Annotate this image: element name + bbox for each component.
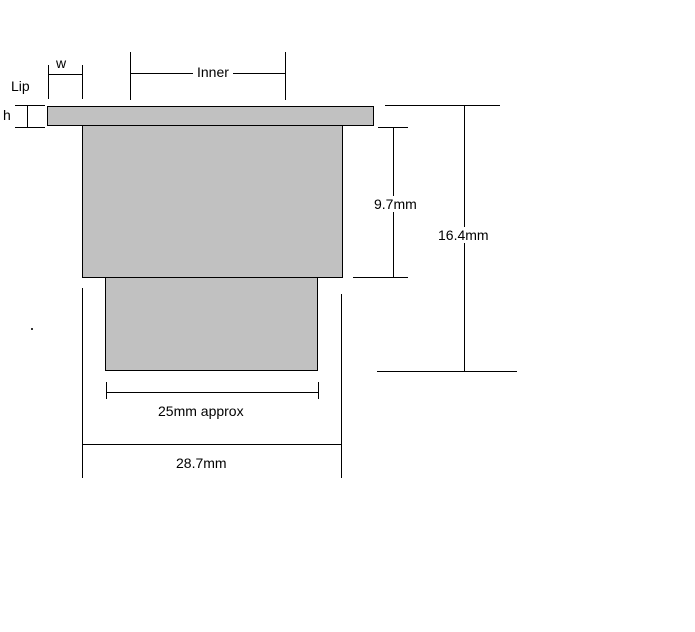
inner-depth-tick-bottom <box>353 277 408 278</box>
lower-width-tick-left <box>106 382 107 399</box>
inner-depth-label: 9.7mm <box>370 196 421 212</box>
lower-block-rect <box>105 277 318 371</box>
body-width-extension-line-left <box>82 288 83 478</box>
w-extension-line-left <box>48 65 49 99</box>
main-body-rect <box>82 125 343 278</box>
total-depth-tick-bottom <box>377 371 517 372</box>
body-width-dimension-line <box>82 444 342 445</box>
flange-lip-rect <box>47 106 374 126</box>
body-width-extension-line-right <box>341 294 342 478</box>
diagram-canvas: w Inner Lip h 9.7mm 16.4mm 25mm approx 2… <box>0 0 695 632</box>
lower-width-tick-right <box>318 382 319 399</box>
inner-extension-line-right <box>285 52 286 100</box>
body-width-label: 28.7mm <box>176 455 227 471</box>
h-label: h <box>3 107 11 123</box>
w-dimension-line <box>48 74 83 75</box>
lip-label: Lip <box>11 78 30 94</box>
lower-width-dimension-line <box>106 392 319 393</box>
stray-dot <box>31 328 33 330</box>
h-dimension-line <box>27 105 28 128</box>
w-label: w <box>56 55 66 71</box>
w-extension-line-right <box>82 65 83 99</box>
h-extension-line-bottom <box>15 127 45 128</box>
inner-extension-line-left <box>130 52 131 100</box>
total-depth-label: 16.4mm <box>434 227 493 243</box>
lower-width-label: 25mm approx <box>158 403 244 419</box>
h-extension-line-top <box>15 105 45 106</box>
inner-depth-tick-top <box>378 127 408 128</box>
total-depth-tick-top <box>385 105 500 106</box>
inner-label: Inner <box>193 64 233 80</box>
